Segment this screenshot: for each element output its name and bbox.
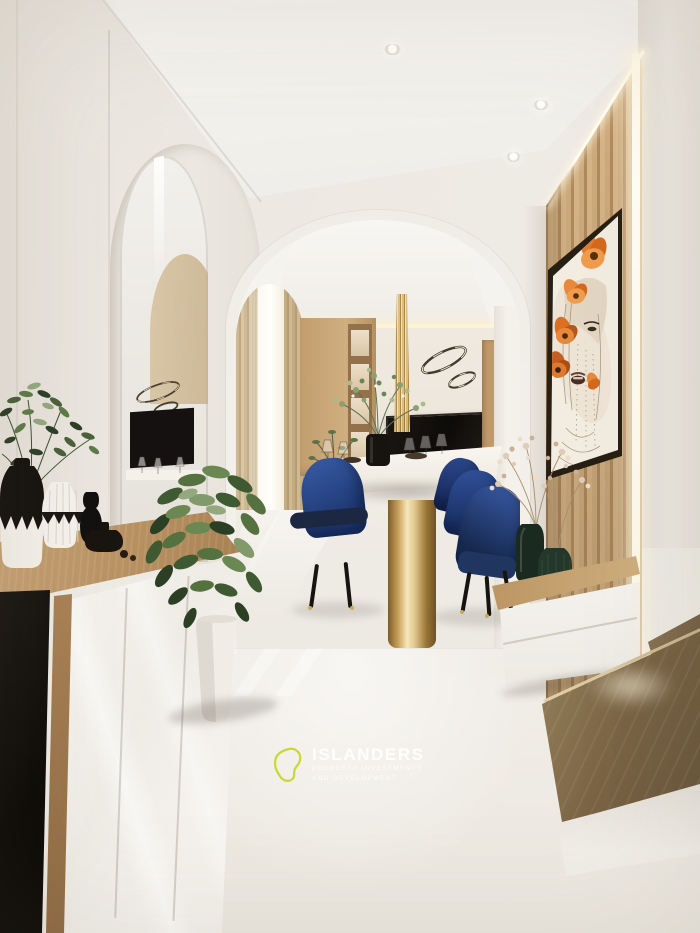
watermark-tagline-1: PROPERTY INVESTMENTS bbox=[312, 765, 425, 774]
watermark-text: ISLANDERS PROPERTY INVESTMENTS AND DEVEL… bbox=[312, 746, 425, 783]
shelf-niche bbox=[351, 330, 369, 356]
dried-blossoms bbox=[490, 436, 591, 491]
islanders-logo-icon bbox=[272, 746, 304, 784]
recessed-ceiling-light bbox=[506, 152, 521, 162]
door-seam bbox=[114, 588, 128, 918]
white-faceted-vase bbox=[42, 482, 84, 548]
chair-leg bbox=[309, 564, 319, 608]
chair-foot-tip bbox=[350, 606, 354, 610]
watermark-brand: ISLANDERS bbox=[312, 746, 425, 764]
black-white-zigzag-vase bbox=[0, 458, 44, 568]
chair-foot-tip bbox=[485, 614, 489, 618]
gold-table-leg bbox=[388, 500, 436, 648]
drawer-seam bbox=[503, 617, 637, 645]
chair-leg bbox=[344, 562, 353, 608]
recessed-ceiling-light bbox=[384, 44, 401, 55]
dining-chair-blue-left bbox=[284, 458, 384, 618]
plant-foliage bbox=[0, 381, 100, 467]
decor-sphere bbox=[120, 550, 128, 558]
chair-foot-tip bbox=[460, 610, 464, 614]
watermark: ISLANDERS PROPERTY INVESTMENTS AND DEVEL… bbox=[272, 736, 462, 794]
potted-plant bbox=[130, 436, 284, 728]
led-glow-on-step bbox=[586, 664, 676, 708]
centerpiece-leaves bbox=[333, 368, 426, 411]
chair-leg bbox=[461, 572, 472, 612]
table-centerpiece-and-glassware bbox=[304, 360, 456, 472]
watermark-tagline-2: AND DEVELOPMENT bbox=[312, 775, 425, 784]
plant-leaves bbox=[142, 464, 269, 630]
chair-foot-tip bbox=[308, 606, 312, 610]
recessed-ceiling-light bbox=[533, 100, 549, 110]
table-decor bbox=[405, 453, 427, 459]
mirror-window-reflection bbox=[154, 156, 164, 286]
interior-render: ISLANDERS PROPERTY INVESTMENTS AND DEVEL… bbox=[0, 0, 700, 933]
sideboard-vases-and-plant bbox=[0, 342, 140, 588]
centerpiece-stems bbox=[342, 378, 416, 438]
